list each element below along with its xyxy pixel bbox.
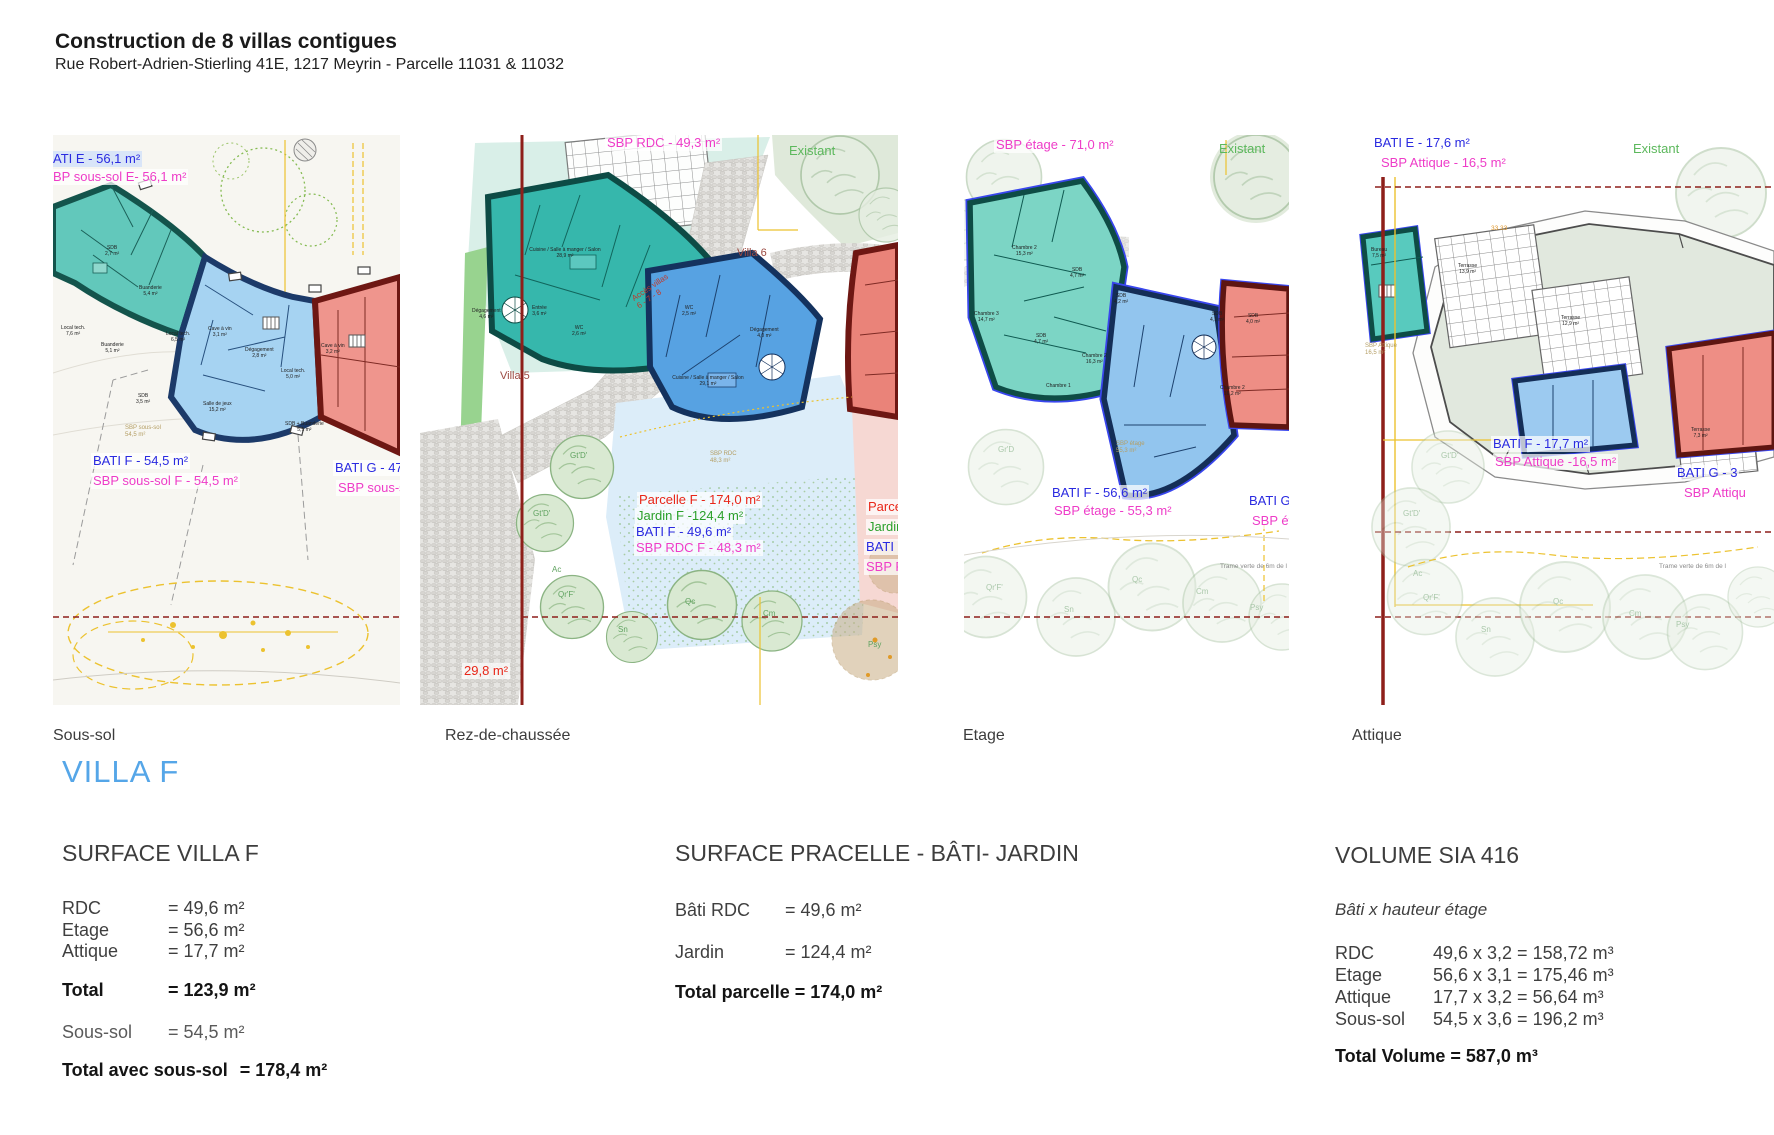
room-label: Bureau 7,5 m²	[1371, 247, 1387, 260]
tree-code-label: Sn	[1064, 605, 1074, 614]
tree-icon	[1520, 562, 1610, 652]
room-label: Salle de jeux 15,2 m²	[203, 401, 232, 414]
tree-code-label: Ac	[1413, 569, 1422, 578]
tree-icon	[517, 495, 574, 552]
stair-icon	[263, 317, 279, 329]
document-subtitle: Rue Robert-Adrien-Stierling 41E, 1217 Me…	[55, 56, 564, 74]
villa-g-footprint	[848, 245, 898, 417]
room-label: Chambre 2 15,3 m²	[1012, 245, 1037, 258]
volume-note: Bâti x hauteur étage	[1335, 900, 1487, 920]
area-label-sbp-f: SBP Attique -16,5 m²	[1493, 454, 1618, 470]
area-label-sbp-e: SBP Attique - 16,5 m²	[1379, 155, 1508, 171]
area-label-sbp-f: SBP étage - 55,3 m²	[1052, 503, 1174, 519]
tree-icon	[1372, 488, 1450, 566]
area-label-sbp-e: BP sous-sol E- 56,1 m²	[53, 169, 188, 185]
soussol-label: Sous-sol	[62, 1022, 168, 1043]
area-label-bati-e: ATI E - 56,1 m²	[53, 151, 142, 167]
villa5-label: Villa 5	[498, 370, 532, 383]
row-value: 54,5 x 3,6 = 196,2 m³	[1433, 1008, 1604, 1030]
area-label-sbp-g: SBP étag	[1250, 513, 1289, 529]
room-label: WC 2,5 m²	[682, 305, 696, 318]
total-value: = 123,9 m²	[168, 980, 256, 1001]
tree-code-label: Cm	[1196, 587, 1208, 596]
plan-panel-etage: SBP étage - 71,0 m² Existant BATI F - 56…	[964, 135, 1289, 705]
area-label-sbp-g: SBP Attiqu	[1682, 485, 1748, 501]
volume-total: Total Volume = 587,0 m³	[1335, 1046, 1538, 1067]
sbp-g-label: SBP RD	[864, 559, 898, 575]
sbp-inner-note: SBP RDC 48,3 m²	[710, 451, 737, 465]
row-value: = 49,6 m²	[168, 898, 245, 920]
row-label: Attique	[1335, 986, 1433, 1008]
surface-villa-heading: SURFACE VILLA F	[62, 840, 259, 867]
row-value: 49,6 x 3,2 = 158,72 m³	[1433, 942, 1614, 964]
volume-heading: VOLUME SIA 416	[1335, 842, 1519, 869]
caption-etage: Etage	[963, 727, 1005, 745]
tree-icon	[969, 430, 1044, 505]
grand-total-value: = 178,4 m²	[240, 1060, 328, 1081]
existant-label: Existant	[1217, 141, 1267, 157]
room-label: Chambre 2 16,3 m²	[1082, 353, 1107, 366]
parcelle-total-row: Total parcelle = 174,0 m²	[675, 982, 882, 1003]
room-label: SDB 2,7 m²	[105, 245, 119, 258]
area-label-sbp-f: SBP sous-sol F - 54,5 m²	[91, 473, 240, 489]
row-label: Etage	[1335, 964, 1433, 986]
elevation-mark: 33.33	[1491, 225, 1507, 232]
sbp-inner-note: SBP étage 55,3 m²	[1116, 441, 1145, 455]
tree-icon	[607, 612, 658, 663]
room-label: SDB 4,0 m²	[1246, 313, 1260, 326]
row-label: Bâti RDC	[675, 900, 785, 921]
tree-code-label: Qr'F'	[1423, 593, 1440, 602]
tree-icon	[668, 571, 737, 640]
parcelle-total: Total parcelle = 174,0 m²	[675, 982, 882, 1003]
volume-note-text: Bâti x hauteur étage	[1335, 900, 1487, 920]
trame-verte-note: Trame verte de 6m de l	[1220, 563, 1287, 570]
row-value: 17,7 x 3,2 = 56,64 m³	[1433, 986, 1604, 1008]
area-label-bati-e: BATI E - 17,6 m²	[1372, 135, 1472, 151]
area-29-label: 29,8 m²	[462, 663, 510, 679]
villa-g-attique	[1669, 333, 1774, 455]
tree-icon	[541, 576, 604, 639]
room-label: Chambre 2 16,2 m²	[1220, 385, 1245, 398]
etage-plan-drawing	[964, 135, 1289, 705]
room-label: SDB 4,7 m²	[1034, 333, 1048, 346]
row-label: Attique	[62, 941, 168, 963]
surface-villa-rows: RDC= 49,6 m² Etage= 56,6 m² Attique= 17,…	[62, 898, 245, 963]
tree-code-label: Sn	[618, 625, 628, 634]
parcelle-bati-row: Bâti RDC = 49,6 m²	[675, 900, 862, 921]
tree-icon	[551, 436, 614, 499]
area-label-bati-f: BATI F - 17,7 m²	[1491, 436, 1590, 452]
plan-panel-attique: BATI E - 17,6 m² SBP Attique - 16,5 m² E…	[1353, 135, 1774, 705]
tree-code-label: Psy	[1250, 603, 1263, 612]
volume-row: RDC49,6 x 3,2 = 158,72 m³	[1335, 942, 1614, 964]
parcelle-jardin-row: Jardin = 124,4 m²	[675, 942, 872, 963]
trame-verte-note: Trame verte de 6m de l	[1659, 563, 1726, 570]
volume-row: Sous-sol54,5 x 3,6 = 196,2 m³	[1335, 1008, 1614, 1030]
room-label: WC 2,6 m²	[572, 325, 586, 338]
jardin-g-label: Jardin G	[866, 519, 898, 535]
row-value: = 56,6 m²	[168, 920, 245, 942]
row-label: RDC	[62, 898, 168, 920]
existant-label: Existant	[1631, 141, 1681, 157]
area-label-bati-g: BATI G -	[1247, 493, 1289, 509]
sbp-inner-note: SBP Attique 16,5 m²	[1365, 343, 1397, 357]
room-label: Terrasse 12,9 m²	[1561, 315, 1580, 328]
existant-label: Existant	[787, 143, 837, 159]
volume-rows: RDC49,6 x 3,2 = 158,72 m³ Etage56,6 x 3,…	[1335, 942, 1614, 1030]
room-label: Local tech. 5,0 m²	[281, 368, 305, 381]
surface-total-row: Total = 123,9 m²	[62, 980, 256, 1001]
room-label: SDB 3,5 m²	[136, 393, 150, 406]
tree-code-label: Psy	[1676, 620, 1689, 629]
row-value: = 124,4 m²	[785, 942, 872, 963]
row-value: = 49,6 m²	[785, 900, 862, 921]
room-label: SDB 4,2 m²	[1114, 293, 1128, 306]
room-label: SDB 4,7 m²	[1070, 267, 1084, 280]
parcelle-f-label: Parcelle F - 174,0 m²	[637, 492, 762, 508]
caption-rdc: Rez-de-chaussée	[445, 727, 570, 745]
plan-panel-rdc: SBP RDC - 49,3 m² Existant Villa 6 Villa…	[420, 135, 898, 705]
tree-code-label: Gt'D'	[533, 509, 550, 518]
stair-icon	[349, 335, 365, 347]
document-title: Construction de 8 villas contigues	[55, 30, 397, 54]
attique-plan-drawing	[1353, 135, 1774, 705]
tree-code-label: Ac	[552, 565, 561, 574]
volume-total-row: Total Volume = 587,0 m³	[1335, 1046, 1538, 1067]
terrace-grid	[1435, 225, 1549, 348]
soussol-value: = 54,5 m²	[168, 1022, 245, 1043]
room-label: Cave à vin 3,1 m²	[208, 326, 232, 339]
sous-sol-plan-drawing	[53, 135, 400, 705]
tree-code-label: Qr'F'	[558, 590, 575, 599]
tree-code-label: Gt'D'	[570, 451, 587, 460]
row-value: 56,6 x 3,1 = 175,46 m³	[1433, 964, 1614, 986]
room-label: Terrasse 7,3 m²	[1691, 427, 1710, 440]
room-label: Entrée 3,6 m²	[532, 305, 547, 318]
surface-grand-total-row: Total avec sous-sol = 178,4 m²	[62, 1060, 327, 1081]
room-label: Dégagement 2,8 m²	[245, 347, 274, 360]
area-label-bati-g: BATI G - 47,5	[333, 460, 400, 476]
room-label: Terrasse 13,9 m²	[1458, 263, 1477, 276]
tree-icon	[1109, 544, 1196, 631]
caption-sous-sol: Sous-sol	[53, 727, 115, 745]
room-label: Dégagement 4,0 m²	[750, 327, 779, 340]
parcelle-g-label: Parcelle	[866, 499, 898, 515]
tree-code-label: Gt'D'	[1403, 509, 1420, 518]
tree-code-label: Qc	[1132, 575, 1142, 584]
room-label: Local tech. 7,6 m²	[61, 325, 85, 338]
plan-panel-sous-sol: ATI E - 56,1 m² BP sous-sol E- 56,1 m² B…	[53, 135, 400, 705]
room-label: Cuisine / Salle à manger / Salon 29,1 m²	[668, 375, 748, 388]
room-label: Buanderie 5,1 m²	[101, 342, 124, 355]
tree-code-label: Gr'D	[998, 445, 1014, 454]
tree-code-label: Gt'D'	[1441, 451, 1458, 460]
row-label: Jardin	[675, 942, 785, 963]
area-label-sbp-etage: SBP étage - 71,0 m²	[994, 137, 1116, 153]
room-label: Buanderie 5,4 m²	[139, 285, 162, 298]
grand-total-label: Total avec sous-sol	[62, 1060, 228, 1081]
area-label-bati-f: BATI F - 54,5 m²	[91, 453, 190, 469]
bati-g-label: BATI G	[864, 539, 898, 555]
room-label: Dégagement 4,6 m²	[472, 308, 501, 321]
jardin-f-label: Jardin F -124,4 m²	[635, 508, 745, 524]
volume-row: Attique17,7 x 3,2 = 56,64 m³	[1335, 986, 1614, 1008]
sbp-inner-note: SBP sous-sol 54,5 m²	[125, 425, 161, 439]
tree-code-label: Cm	[763, 609, 775, 618]
surface-row: Etage= 56,6 m²	[62, 920, 245, 942]
rdc-plan-drawing	[420, 135, 898, 705]
villa-f-title: VILLA F	[62, 754, 179, 790]
room-label: Cave à vin 3,2 m²	[321, 343, 345, 356]
row-label: Sous-sol	[1335, 1008, 1433, 1030]
row-label: RDC	[1335, 942, 1433, 964]
room-label: SDB + Buanderie 5,1 m²	[285, 421, 324, 434]
tree-code-label: Psy	[868, 640, 881, 649]
surface-soussol-row: Sous-sol = 54,5 m²	[62, 1022, 245, 1043]
surface-parcelle-heading: SURFACE PRACELLE - BÂTI- JARDIN	[675, 840, 1079, 867]
villa-e-footprint	[970, 181, 1124, 398]
tree-code-label: Qc	[685, 597, 695, 606]
row-label: Etage	[62, 920, 168, 942]
tree-code-label: Cm	[1629, 609, 1641, 618]
volume-row: Etage56,6 x 3,1 = 175,46 m³	[1335, 964, 1614, 986]
area-label-bati-f: BATI F - 56,6 m²	[1050, 485, 1149, 501]
tree-icon	[742, 591, 802, 651]
room-label: Chambre 3 14,7 m²	[974, 311, 999, 324]
row-value: = 17,7 m²	[168, 941, 245, 963]
area-label-sbp-g: SBP sous-sol	[336, 480, 400, 496]
tree-code-label: Sn	[1481, 625, 1491, 634]
room-label: Local tech. 6,5 m²	[166, 331, 190, 344]
surface-row: Attique= 17,7 m²	[62, 941, 245, 963]
bati-f-label: BATI F - 49,6 m²	[634, 524, 733, 540]
total-label: Total	[62, 980, 168, 1001]
sbp-f-label: SBP RDC F - 48,3 m²	[634, 540, 763, 556]
room-label: SDB 4,1 m²	[1210, 311, 1224, 324]
room-label: Cuisine / Salle à manger / Salon 28,9 m²	[525, 247, 605, 260]
tree-code-label: Qr'F'	[986, 583, 1003, 592]
room-label: Chambre 1	[1046, 383, 1071, 389]
villa6-label: Villa 6	[735, 247, 769, 260]
caption-attique: Attique	[1352, 727, 1402, 745]
tree-code-label: Qc	[1553, 597, 1563, 606]
surface-row: RDC= 49,6 m²	[62, 898, 245, 920]
area-label-sbp-rdc: SBP RDC - 49,3 m²	[605, 135, 722, 151]
area-label-bati-g: BATI G - 3	[1675, 465, 1739, 481]
